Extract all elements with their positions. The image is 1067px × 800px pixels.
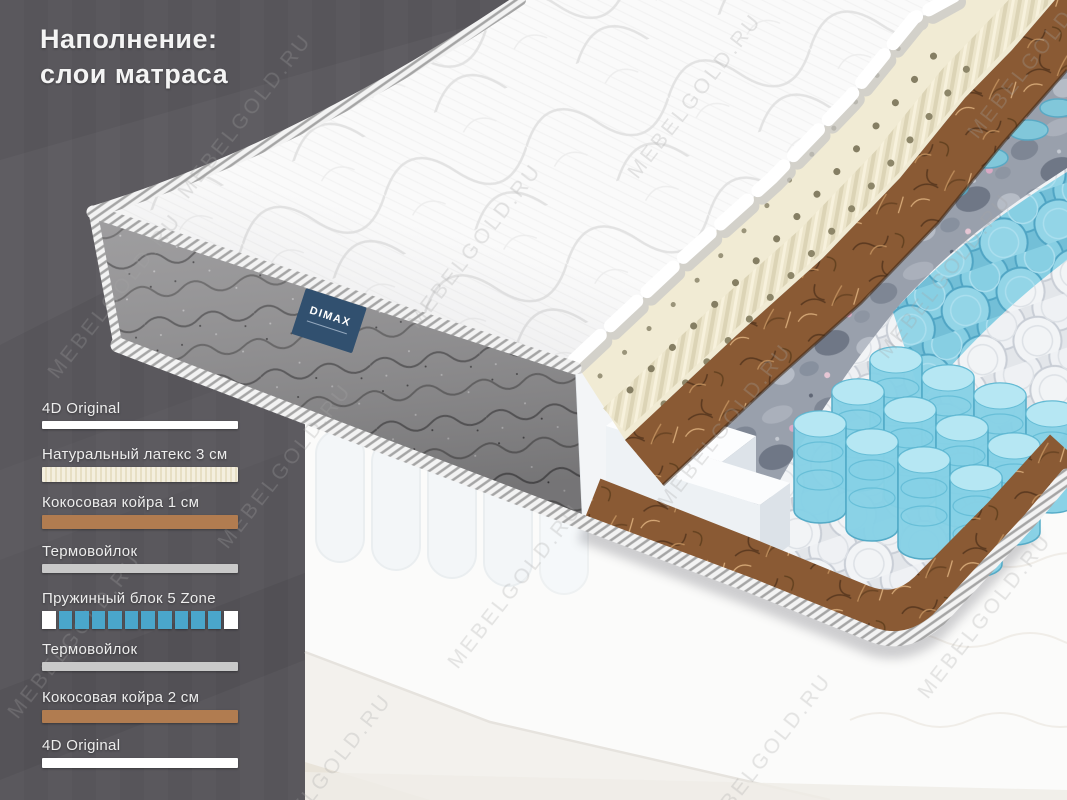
layer-label: Натуральный латекс 3 см	[42, 446, 238, 464]
layer-label: 4D Original	[42, 400, 238, 418]
layer-bar-bottom-4d-original	[42, 758, 238, 768]
layer-row-natural-latex: Натуральный латекс 3 см	[42, 446, 238, 482]
zone-segment	[224, 611, 238, 629]
zone-segment	[75, 611, 89, 629]
layer-label: Термовойлок	[42, 641, 238, 659]
layers-legend-panel: Наполнение: слои матраса 4D Original Нат…	[0, 0, 305, 800]
layer-row-spring-block-5zone: Пружинный блок 5 Zone	[42, 590, 238, 629]
layer-bar-thermofelt-lower	[42, 662, 238, 671]
layer-bar-thermofelt-upper	[42, 564, 238, 573]
layer-row-thermofelt-upper: Термовойлок	[42, 543, 238, 573]
page-title-line1: Наполнение:	[40, 22, 228, 57]
layer-row-bottom-4d-original: 4D Original	[42, 737, 238, 768]
layer-row-coir-2cm: Кокосовая койра 2 см	[42, 689, 238, 723]
layer-bar-natural-latex	[42, 467, 238, 482]
zone-segment	[141, 611, 155, 629]
layer-row-thermofelt-lower: Термовойлок	[42, 641, 238, 671]
zone-segment	[158, 611, 172, 629]
zone-segment	[175, 611, 189, 629]
zone-segment	[42, 611, 56, 629]
zone-segment	[125, 611, 139, 629]
zone-segment	[208, 611, 222, 629]
layer-label: Кокосовая койра 2 см	[42, 689, 238, 707]
layer-bar-spring-block-5zone	[42, 611, 238, 629]
layer-bar-coir-1cm	[42, 515, 238, 529]
zone-segment	[191, 611, 205, 629]
page-title: Наполнение: слои матраса	[40, 22, 228, 92]
layer-label: Пружинный блок 5 Zone	[42, 590, 238, 608]
layer-row-coir-1cm: Кокосовая койра 1 см	[42, 494, 238, 529]
layer-row-top-4d-original: 4D Original	[42, 400, 238, 429]
zone-segment	[108, 611, 122, 629]
layer-label: Кокосовая койра 1 см	[42, 494, 238, 512]
layer-bar-top-4d-original	[42, 421, 238, 429]
mattress-layers-infographic: DIMAX MEBELGOLD.RU MEBELGOLD.RU MEBELGOL…	[0, 0, 1067, 800]
zone-segment	[92, 611, 106, 629]
page-title-line2: слои матраса	[40, 57, 228, 92]
layer-bar-coir-2cm	[42, 710, 238, 723]
layer-label: Термовойлок	[42, 543, 238, 561]
zone-segment	[59, 611, 73, 629]
layer-label: 4D Original	[42, 737, 238, 755]
